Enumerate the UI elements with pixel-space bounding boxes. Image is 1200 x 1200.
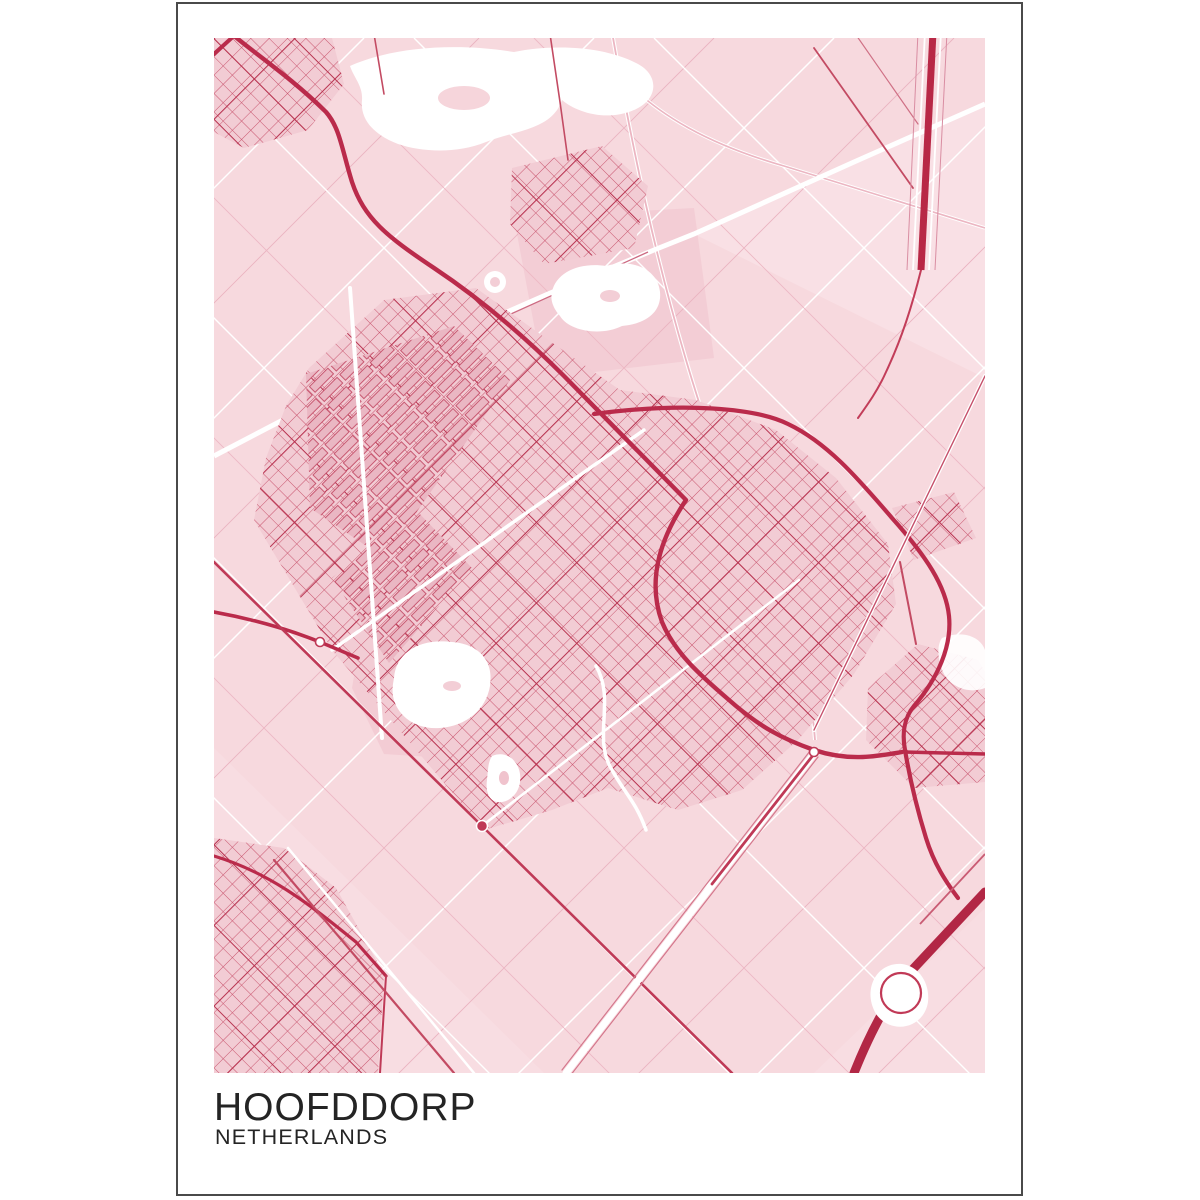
poster-title: HOOFDDORP: [214, 1088, 477, 1127]
map-graphic: [214, 38, 985, 1073]
page-background: { "poster": { "title": "HOOFDDORP", "sub…: [0, 0, 1200, 1200]
poster-subtitle: NETHERLANDS: [215, 1126, 388, 1148]
city-map: [214, 38, 985, 1073]
